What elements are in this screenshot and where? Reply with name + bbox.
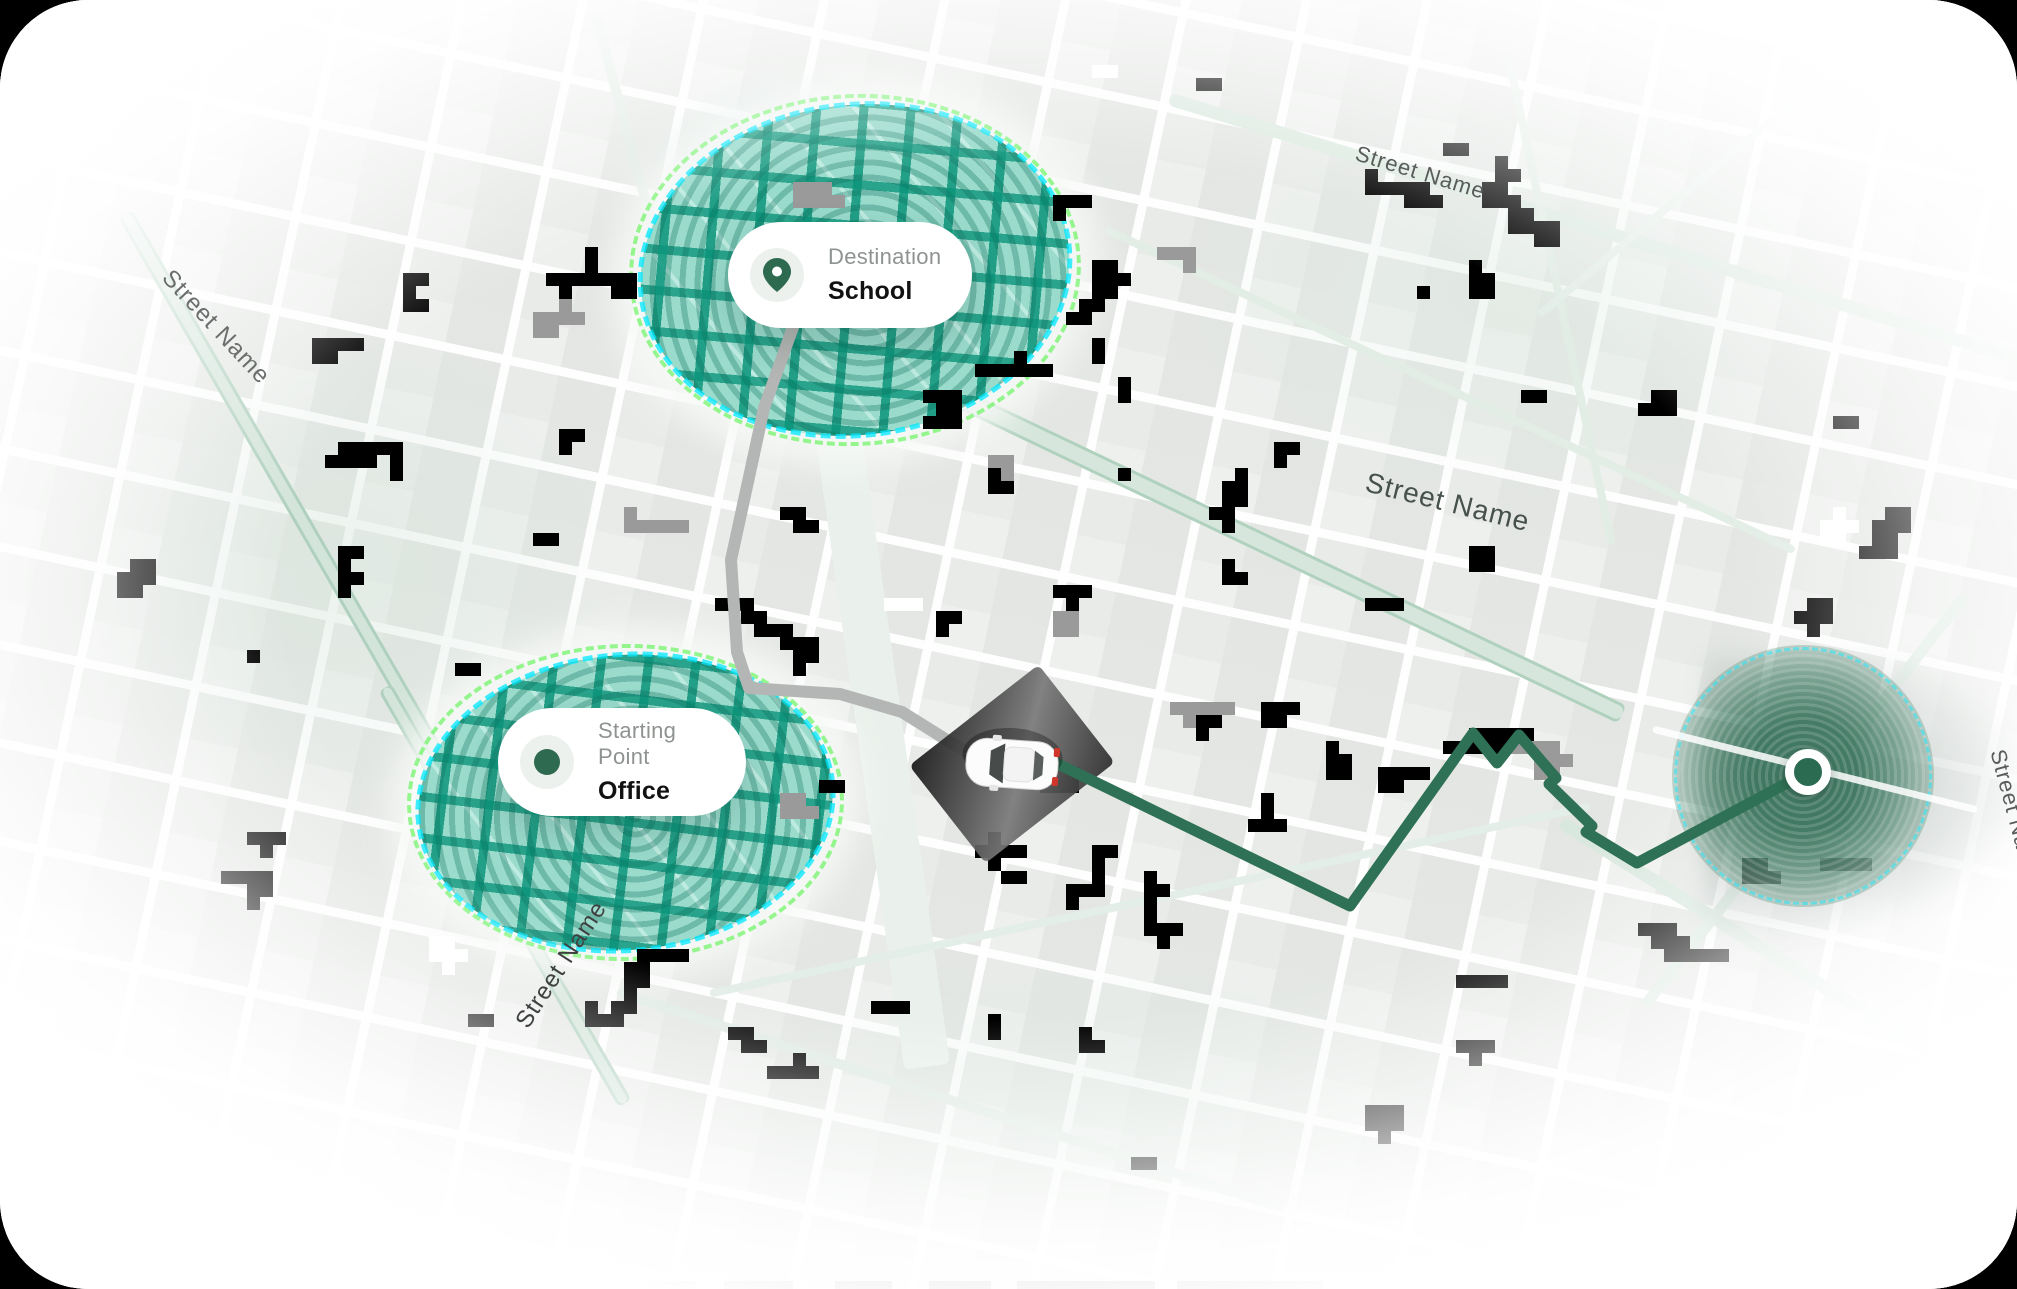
map-view-frame: Street Name Street Name Street Name Stre… [0, 0, 2017, 1289]
card-value: School [828, 277, 941, 306]
destination-card[interactable]: Destination School [728, 222, 972, 328]
location-pin-icon [763, 258, 791, 292]
dot-icon [534, 749, 560, 775]
icon-circle [520, 735, 574, 789]
map-canvas[interactable]: Street Name Street Name Street Name Stre… [0, 0, 2017, 1289]
card-text: Destination School [828, 244, 941, 306]
card-text: Starting Point Office [598, 718, 716, 806]
current-location-marker[interactable] [1785, 749, 1831, 795]
card-title: Starting Point [598, 718, 716, 770]
icon-circle [750, 248, 804, 302]
map-tint [700, 950, 1500, 1289]
card-title: Destination [828, 244, 941, 270]
start-card[interactable]: Starting Point Office [498, 708, 746, 816]
card-value: Office [598, 777, 716, 806]
